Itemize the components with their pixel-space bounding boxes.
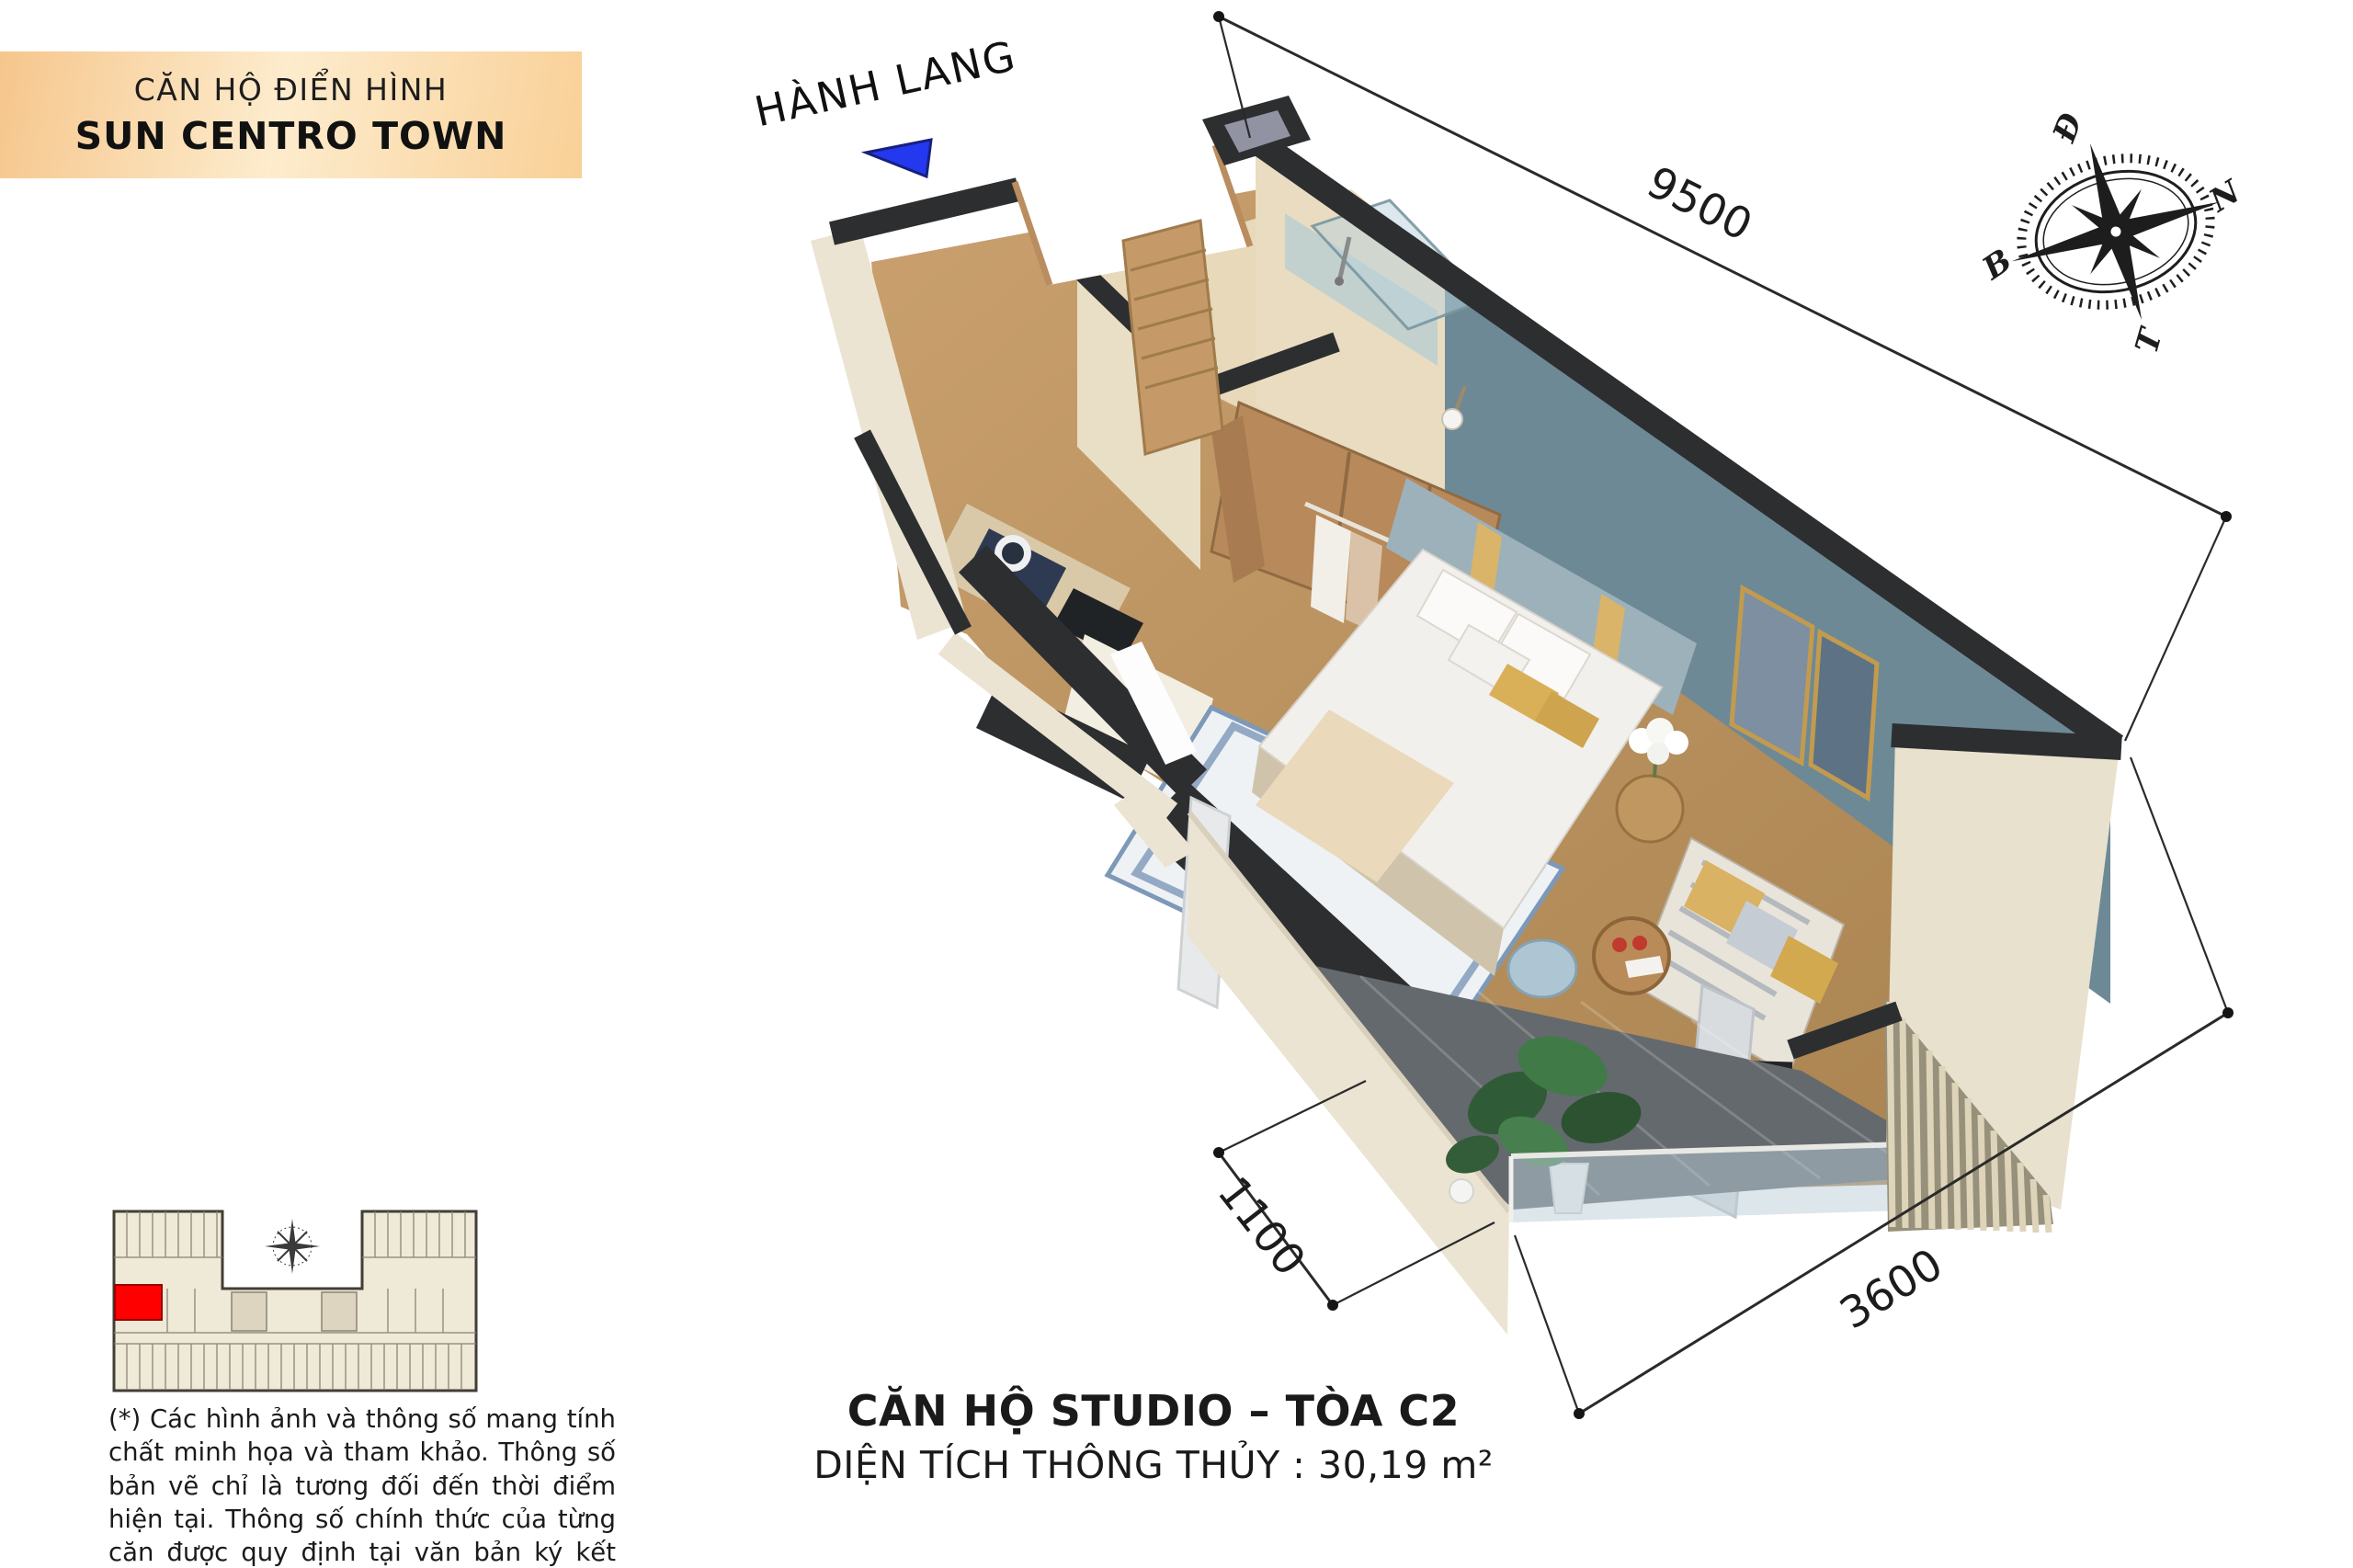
keyplan-unit-highlight — [115, 1285, 162, 1320]
dimension-balcony-depth: 1100 — [1208, 1167, 1315, 1285]
apartment-unit — [811, 96, 2121, 1335]
dimension-width: 3600 — [1832, 1239, 1952, 1339]
entrance-wall-cap — [832, 189, 1018, 233]
compass-north: B — [1975, 242, 2018, 288]
corridor-arrow-icon — [866, 140, 931, 176]
compass-east: Đ — [2046, 108, 2090, 148]
keyplan — [114, 1211, 476, 1391]
compass-rose: Đ N T B — [1945, 69, 2279, 396]
compass-south: N — [2202, 172, 2248, 220]
disclaimer-text: (*) Các hình ảnh và thông số mang tính c… — [108, 1403, 616, 1568]
floorplan-3d: 9500 1100 3600 Đ N T B — [0, 0, 2353, 1568]
compass-west: T — [2129, 323, 2171, 358]
unit-title-block: CĂN HỘ STUDIO – TÒA C2 DIỆN TÍCH THÔNG T… — [790, 1386, 1517, 1487]
keyplan-compass-icon — [265, 1219, 320, 1274]
pouf — [1508, 940, 1576, 997]
coffee-table — [1594, 918, 1669, 994]
hanging-clothes — [1311, 515, 1351, 623]
dimension-length: 9500 — [1639, 157, 1760, 252]
unit-area: DIỆN TÍCH THÔNG THỦY : 30,19 m² — [790, 1443, 1517, 1487]
unit-title: CĂN HỘ STUDIO – TÒA C2 — [790, 1386, 1517, 1436]
brochure-page: CĂN HỘ ĐIỂN HÌNH SUN CENTRO TOWN HÀNH LA… — [0, 0, 2353, 1568]
